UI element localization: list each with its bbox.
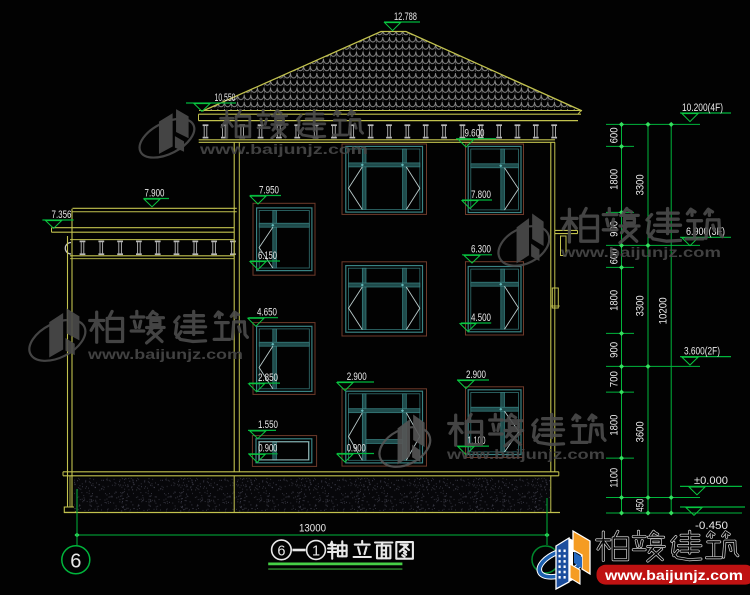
svg-text:0.900: 0.900 xyxy=(258,443,277,455)
svg-text:www.baijunjz.com: www.baijunjz.com xyxy=(446,447,605,462)
svg-text:6.300: 6.300 xyxy=(471,244,491,256)
svg-text:4.650: 4.650 xyxy=(257,307,277,319)
svg-text:12.788: 12.788 xyxy=(394,11,417,23)
svg-text:6: 6 xyxy=(277,543,285,559)
svg-text:±0.000: ±0.000 xyxy=(694,475,728,487)
svg-text:9.600: 9.600 xyxy=(465,128,485,140)
svg-text:13000: 13000 xyxy=(299,523,326,535)
svg-text:0.900: 0.900 xyxy=(347,442,366,454)
svg-text:3600: 3600 xyxy=(635,421,647,442)
svg-text:2.850: 2.850 xyxy=(258,372,278,384)
svg-text:2.900: 2.900 xyxy=(466,369,486,381)
svg-text:7.800: 7.800 xyxy=(471,189,491,201)
svg-text:900: 900 xyxy=(609,342,621,358)
svg-text:1100: 1100 xyxy=(609,468,621,488)
svg-text:7.950: 7.950 xyxy=(259,184,279,196)
svg-text:www.baijunjz.com: www.baijunjz.com xyxy=(199,142,368,157)
svg-text:www.baijunjz.com: www.baijunjz.com xyxy=(87,347,243,362)
svg-text:450: 450 xyxy=(635,499,647,512)
svg-text:7.900: 7.900 xyxy=(145,187,165,199)
svg-text:2.900: 2.900 xyxy=(347,371,367,383)
svg-text:10200: 10200 xyxy=(658,297,670,324)
svg-text:1800: 1800 xyxy=(609,415,621,436)
svg-text:6.150: 6.150 xyxy=(258,250,277,262)
svg-text:www.baijunjz.com: www.baijunjz.com xyxy=(560,245,721,260)
svg-text:600: 600 xyxy=(609,127,621,143)
svg-text:3300: 3300 xyxy=(635,174,647,195)
svg-text:3.600(2F): 3.600(2F) xyxy=(684,345,720,357)
svg-text:1800: 1800 xyxy=(609,169,621,190)
svg-text:-0.450: -0.450 xyxy=(695,520,728,532)
svg-text:6: 6 xyxy=(70,551,81,573)
svg-text:10.200(4F): 10.200(4F) xyxy=(682,102,723,114)
svg-text:10.550: 10.550 xyxy=(215,92,236,104)
svg-text:4.500: 4.500 xyxy=(471,312,491,324)
svg-text:www.baijunjz.com: www.baijunjz.com xyxy=(604,568,743,583)
svg-text:3300: 3300 xyxy=(635,295,647,316)
svg-text:7.356: 7.356 xyxy=(52,209,72,221)
svg-text:700: 700 xyxy=(609,371,621,387)
svg-text:1800: 1800 xyxy=(609,290,621,311)
svg-text:1: 1 xyxy=(312,543,320,559)
svg-text:1.550: 1.550 xyxy=(258,419,278,431)
